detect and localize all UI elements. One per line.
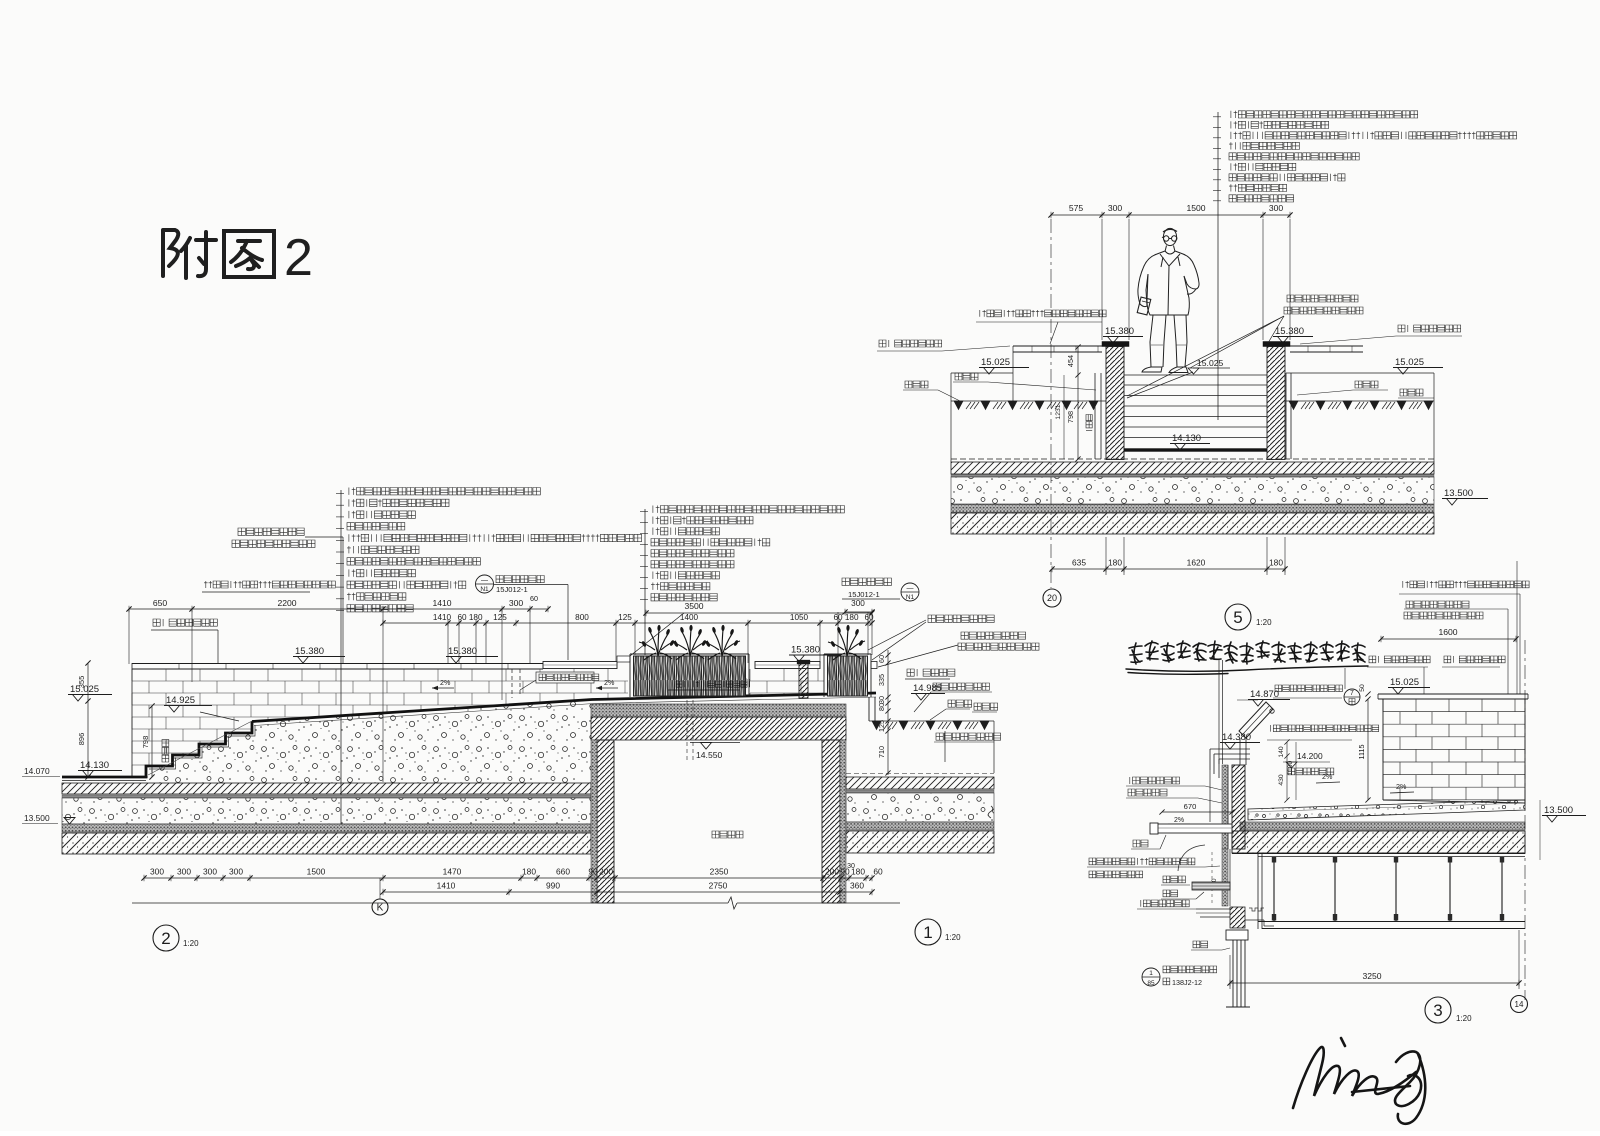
svg-text:300: 300: [1269, 203, 1284, 213]
svg-text:2%: 2%: [440, 678, 451, 687]
svg-text:660: 660: [556, 867, 570, 877]
svg-text:200: 200: [599, 867, 613, 877]
svg-text:300: 300: [150, 867, 164, 877]
svg-text:15.380: 15.380: [295, 646, 324, 657]
svg-text:355: 355: [77, 676, 86, 689]
svg-text:K: K: [377, 903, 384, 914]
svg-text:1500: 1500: [1186, 203, 1205, 213]
svg-text:180: 180: [1108, 558, 1122, 568]
svg-text:1:20: 1:20: [1256, 618, 1272, 627]
svg-text:800: 800: [575, 613, 589, 622]
svg-text:80: 80: [877, 703, 886, 711]
svg-text:180: 180: [1269, 558, 1283, 568]
svg-text:1600: 1600: [1438, 627, 1457, 637]
svg-text:300: 300: [509, 598, 524, 608]
svg-text:710: 710: [877, 746, 886, 758]
svg-text:2350: 2350: [710, 867, 729, 877]
svg-text:1: 1: [923, 923, 932, 942]
svg-text:15.380: 15.380: [791, 645, 820, 656]
svg-text:14: 14: [1515, 1000, 1524, 1009]
svg-text:1470: 1470: [443, 867, 462, 877]
svg-text:300: 300: [1108, 203, 1123, 213]
svg-text:2%: 2%: [604, 678, 615, 687]
svg-text:300: 300: [229, 867, 243, 877]
svg-text:14.380: 14.380: [1222, 732, 1251, 743]
svg-text:1050: 1050: [790, 613, 809, 622]
svg-text:2: 2: [284, 229, 313, 287]
svg-text:1100: 1100: [1287, 760, 1294, 775]
svg-text:15.380: 15.380: [1105, 326, 1134, 337]
svg-text:15.025: 15.025: [1390, 677, 1419, 688]
svg-text:85: 85: [1147, 980, 1155, 987]
svg-text:14.130: 14.130: [80, 760, 109, 771]
svg-text:13.500: 13.500: [1444, 488, 1473, 499]
svg-text:60: 60: [877, 655, 886, 663]
svg-text:896: 896: [77, 733, 86, 746]
svg-text:2%: 2%: [1322, 772, 1333, 781]
svg-text:1410: 1410: [432, 598, 451, 608]
svg-text:7: 7: [1350, 690, 1354, 697]
svg-text:200: 200: [825, 867, 839, 877]
svg-text:15.025: 15.025: [981, 357, 1010, 368]
svg-text:60 180: 60 180: [833, 613, 858, 622]
svg-text:15.380: 15.380: [1275, 326, 1304, 337]
svg-text:60: 60: [873, 867, 883, 877]
svg-text:300: 300: [203, 867, 217, 877]
svg-text:990: 990: [546, 881, 560, 891]
svg-text:125: 125: [493, 613, 507, 622]
svg-text:180: 180: [522, 867, 536, 877]
svg-text:2750: 2750: [709, 881, 728, 891]
svg-text:5: 5: [1233, 608, 1242, 627]
svg-text:14.070: 14.070: [24, 766, 50, 776]
svg-text:360: 360: [850, 881, 864, 891]
svg-text:60: 60: [530, 594, 538, 603]
svg-text:1410: 1410: [437, 881, 456, 891]
svg-text:14.550: 14.550: [696, 750, 723, 760]
svg-text:138J2-12: 138J2-12: [1172, 978, 1202, 987]
svg-text:15.025: 15.025: [1197, 358, 1224, 368]
svg-text:2: 2: [161, 929, 170, 948]
svg-text:1231: 1231: [1055, 404, 1062, 419]
svg-text:60 180: 60 180: [457, 613, 482, 622]
svg-text:798: 798: [1066, 411, 1075, 423]
svg-text:15.025: 15.025: [1395, 357, 1424, 368]
svg-text:1:20: 1:20: [183, 939, 199, 948]
svg-text:575: 575: [1069, 203, 1084, 213]
svg-text:798: 798: [141, 736, 150, 749]
svg-text:30: 30: [847, 863, 855, 870]
svg-text:3: 3: [1433, 1001, 1442, 1020]
svg-text:14.925: 14.925: [166, 695, 195, 706]
svg-text:3250: 3250: [1362, 971, 1381, 981]
svg-text:1500: 1500: [307, 867, 326, 877]
svg-text:13.500: 13.500: [24, 813, 50, 823]
svg-text:50: 50: [1359, 684, 1366, 692]
svg-text:13.500: 13.500: [1544, 805, 1573, 816]
svg-text:3500: 3500: [684, 601, 703, 611]
svg-text:1410: 1410: [433, 613, 452, 622]
svg-text:454: 454: [1066, 355, 1075, 367]
svg-text:1: 1: [1149, 970, 1153, 977]
svg-text:140: 140: [1278, 746, 1285, 758]
svg-text:1620: 1620: [1187, 558, 1206, 568]
svg-text:1:20: 1:20: [1456, 1014, 1472, 1023]
svg-text:300: 300: [851, 599, 865, 608]
svg-text:N1: N1: [906, 594, 915, 601]
svg-text:15.380: 15.380: [448, 646, 477, 657]
svg-text:15J012-1: 15J012-1: [496, 585, 528, 594]
svg-text:635: 635: [1072, 558, 1086, 568]
svg-text:90: 90: [588, 867, 598, 877]
svg-text:N1: N1: [480, 586, 489, 593]
svg-text:650: 650: [153, 598, 168, 608]
svg-text:14.985: 14.985: [913, 683, 942, 694]
svg-text:2%: 2%: [1174, 817, 1184, 824]
svg-text:125: 125: [877, 720, 886, 732]
svg-text:2200: 2200: [277, 598, 296, 608]
svg-text:430: 430: [1278, 774, 1285, 786]
svg-text:335: 335: [877, 674, 886, 686]
svg-text:300: 300: [177, 867, 191, 877]
svg-text:1:20: 1:20: [945, 933, 961, 942]
svg-text:—: —: [481, 577, 488, 584]
svg-text:30: 30: [877, 696, 886, 704]
svg-text:2%: 2%: [1396, 782, 1407, 791]
svg-text:14.200: 14.200: [1297, 751, 1323, 761]
svg-text:20: 20: [1047, 593, 1057, 603]
svg-text:1115: 1115: [1357, 745, 1366, 760]
svg-text:670: 670: [1184, 802, 1197, 811]
svg-text:—: —: [907, 585, 914, 592]
svg-text:125: 125: [618, 613, 632, 622]
svg-text:14.130: 14.130: [1172, 433, 1201, 444]
svg-text:15J012-1: 15J012-1: [848, 590, 880, 599]
